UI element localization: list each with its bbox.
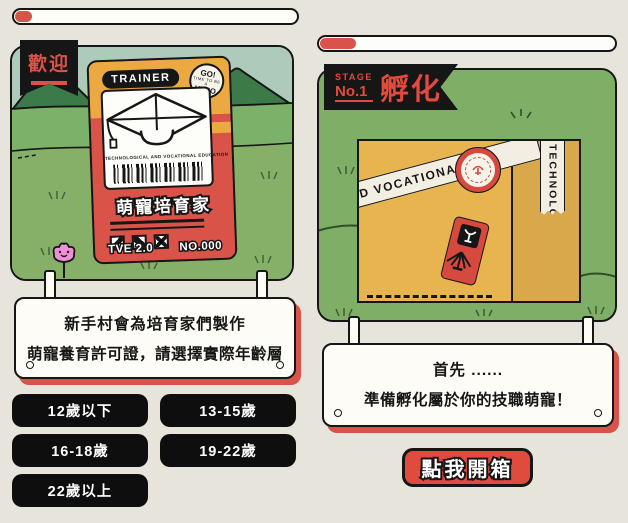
left-progress-fill (15, 11, 32, 22)
card-title: 萌寵培育家 (93, 190, 234, 220)
stamp-sticker (455, 147, 501, 193)
box-bottom-dashes (367, 295, 492, 298)
card-subtitle: TECHNOLOGICAL AND VOCATIONAL EDUCATION (105, 152, 211, 161)
hatch-instruction-sign: 首先 ...... 準備孵化屬於你的技職萌寵！ (322, 343, 614, 427)
age-option-button-16-18[interactable]: 16-18歲 (12, 434, 148, 467)
right-progress-fill (320, 38, 356, 49)
screw-dot (334, 409, 342, 417)
bird-icon (471, 164, 485, 176)
card-version: TVE 2.0 (108, 242, 153, 256)
cardboard-box: ND VOCATIONAL E TECHNOLOG (357, 139, 581, 303)
trainer-card: TRAINER GO! TIME TO BE A HERO TECHNOLOGI… (86, 56, 237, 265)
age-option-button-13-15[interactable]: 13-15歲 (160, 394, 296, 427)
screw-dot (594, 409, 602, 417)
card-number: NO.000 (179, 240, 222, 253)
sign-text-line2: 萌寵養育許可證，請選擇實際年齡層 (16, 342, 294, 364)
screw-dot (276, 361, 284, 369)
open-box-button-label: 點我開箱 (422, 453, 514, 482)
card-divider-line (110, 219, 204, 225)
card-divider-line (110, 226, 204, 231)
age-option-button-over22[interactable]: 22歲以上 (12, 474, 148, 507)
age-instruction-sign: 新手村會為培育家們製作 萌寵養育許可證，請選擇實際年齡層 (14, 297, 296, 379)
sign-text-line1: 首先 ...... (324, 358, 612, 380)
tape-vertical: TECHNOLOG (540, 139, 565, 217)
left-progress-bar (12, 8, 299, 25)
stage-label: STAGE (335, 73, 373, 82)
fragile-glyph-box (456, 223, 481, 248)
stage-banner: STAGE No.1 孵化 (324, 64, 458, 110)
trainer-card-header: TRAINER (102, 68, 180, 89)
welcome-banner-label: 歡迎 (20, 49, 78, 76)
stage-number: No.1 (335, 84, 373, 102)
eagle-emblem-icon (443, 245, 476, 275)
stage-title: 孵化 (380, 66, 442, 108)
age-option-button-under12[interactable]: 12歲以下 (12, 394, 148, 427)
open-box-button[interactable]: 點我開箱 (402, 448, 533, 487)
card-id-panel: TECHNOLOGICAL AND VOCATIONAL EDUCATION (101, 86, 214, 190)
screw-dot (26, 361, 34, 369)
fragile-sticker (440, 216, 490, 287)
age-option-button-19-22[interactable]: 19-22歲 (160, 434, 296, 467)
glass-icon (456, 223, 481, 248)
graduation-cap-icon (103, 88, 211, 150)
sign-text-line1: 新手村會為培育家們製作 (16, 312, 294, 334)
barcode (113, 162, 204, 184)
sign-text-line2: 準備孵化屬於你的技職萌寵！ (324, 388, 612, 410)
right-progress-bar (317, 35, 617, 52)
